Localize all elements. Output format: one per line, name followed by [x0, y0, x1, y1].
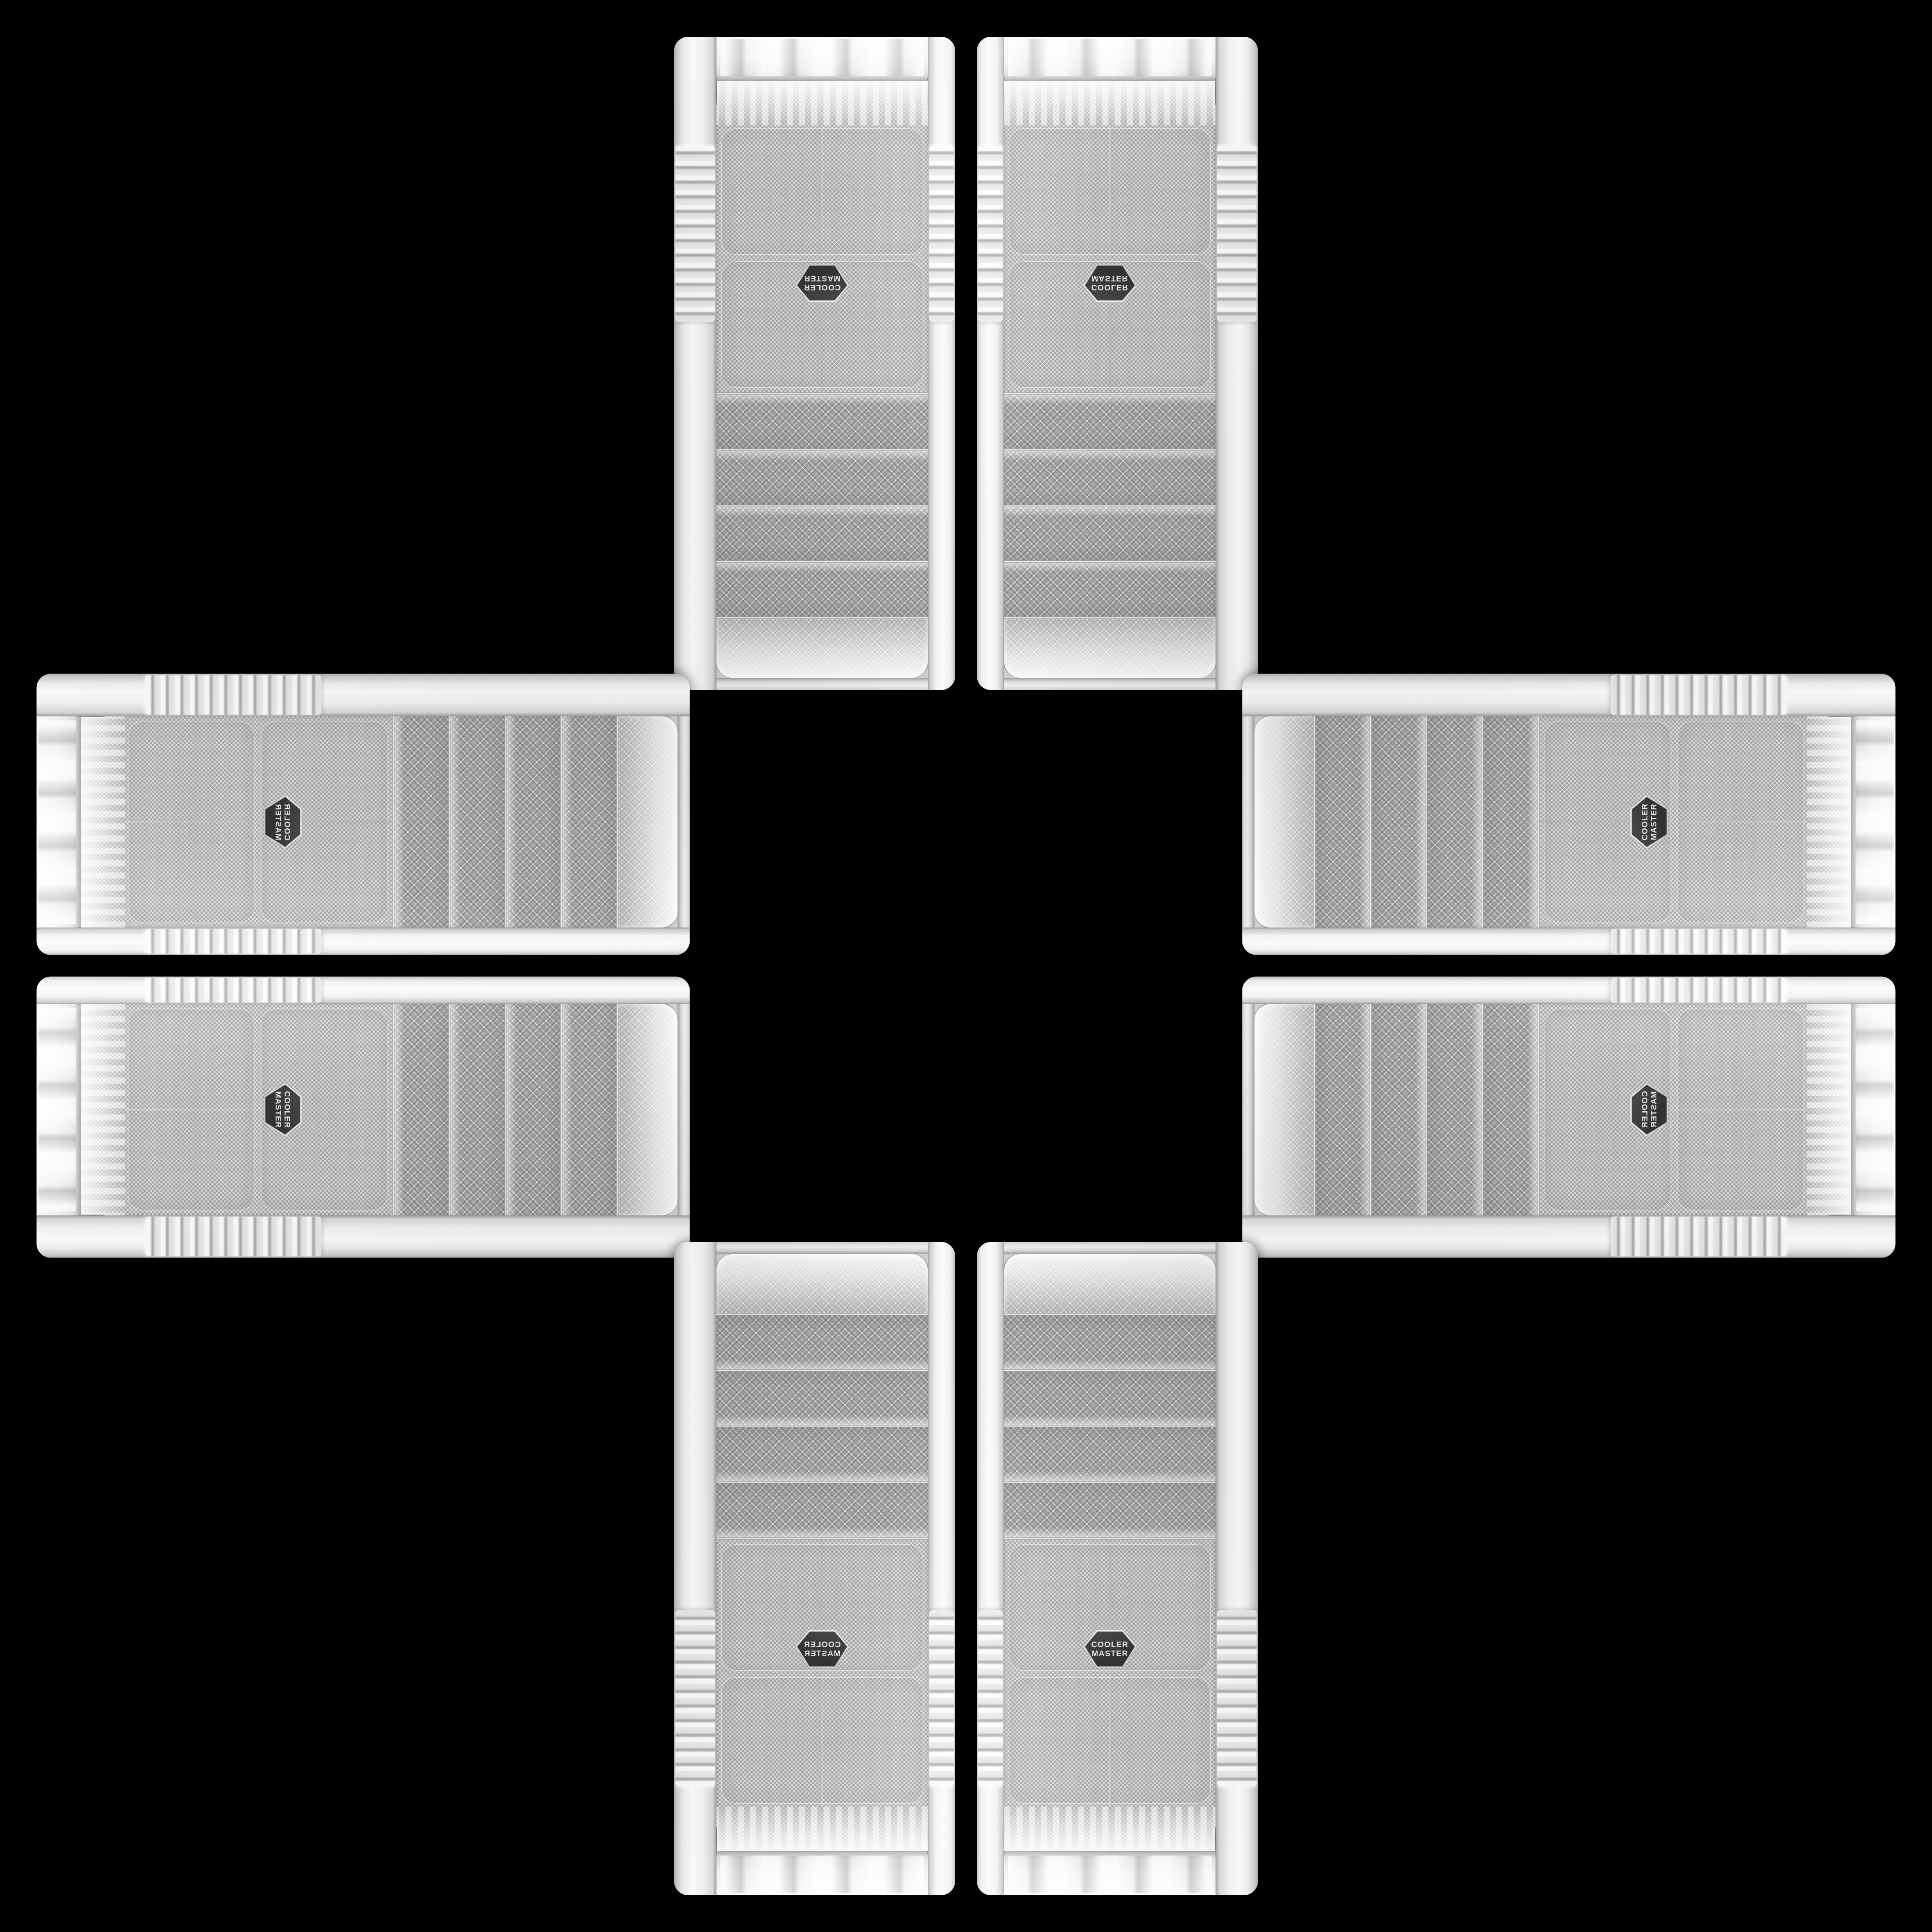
cap-ridges	[1856, 1008, 1894, 1212]
bay-strip	[395, 1004, 449, 1216]
left-rail	[37, 928, 690, 955]
badge-text-cooler: COOLER	[804, 1640, 841, 1649]
badge-text-cooler: COOLER	[804, 283, 841, 292]
grip-texture	[978, 146, 1003, 322]
right-rail	[1216, 37, 1258, 690]
badge-text-cooler: COOLER	[1641, 803, 1649, 841]
grip-texture	[929, 1610, 954, 1786]
grip-texture	[146, 1217, 322, 1257]
left-rail	[977, 37, 1004, 690]
bay-strip	[1004, 1483, 1216, 1537]
cap-ridges	[720, 1856, 924, 1893]
drive-bays	[716, 392, 928, 619]
badge-text-master: MASTER	[804, 1649, 841, 1658]
fan-grille-zone: COOLER MASTER	[716, 1540, 928, 1807]
bay-separator	[1004, 1537, 1216, 1540]
right-rail	[37, 1216, 690, 1258]
grip-texture	[146, 978, 322, 1003]
bay-strip	[1004, 563, 1216, 616]
grip-texture	[929, 146, 954, 322]
badge-text-master: MASTER	[274, 804, 283, 841]
bay-strip	[1004, 507, 1216, 561]
grip-texture	[1611, 675, 1786, 715]
bay-strip	[1004, 1316, 1216, 1369]
bay-strip	[507, 1004, 560, 1216]
bottom-cap	[1242, 1004, 1255, 1216]
fan-grille-zone: COOLER MASTER	[125, 716, 392, 928]
cap-ridges	[39, 1008, 76, 1212]
center-seam	[1109, 1540, 1110, 1807]
bay-strip	[1004, 395, 1216, 449]
center-seam	[822, 1540, 823, 1807]
left-rail	[1242, 977, 1896, 1004]
bay-strip	[1004, 451, 1216, 505]
fan-grille-zone: COOLER MASTER	[716, 125, 928, 392]
bay-strip	[716, 1483, 928, 1537]
top-mesh-wrap	[716, 1807, 928, 1851]
badge-text-master: MASTER	[1649, 804, 1658, 841]
grip-texture	[675, 1610, 715, 1786]
grip-texture	[146, 675, 322, 715]
drive-bays	[392, 716, 619, 928]
bay-strip	[716, 1428, 928, 1482]
bay-strip	[716, 395, 928, 449]
cap-ridges	[1008, 39, 1212, 76]
cap-ridges	[1856, 720, 1894, 924]
bay-strip	[1484, 1004, 1538, 1216]
case-panel-left-top: COOLER MASTER	[37, 674, 690, 955]
drive-bays	[716, 1313, 928, 1540]
top-mesh-wrap	[81, 1004, 125, 1216]
badge-text-master: MASTER	[274, 1091, 283, 1128]
grip-texture	[1611, 929, 1786, 954]
top-cap	[37, 716, 81, 928]
bottom-mesh-wrap	[1255, 716, 1314, 928]
badge-text-cooler: COOLER	[283, 1091, 292, 1128]
mesh-grille: COOLER MASTER	[81, 1004, 678, 1216]
center-seam	[125, 1109, 392, 1110]
top-cap	[1851, 716, 1896, 928]
top-cap	[716, 1851, 928, 1895]
bay-strip	[450, 1004, 504, 1216]
grip-texture	[1217, 1610, 1257, 1786]
bottom-cap	[678, 1004, 690, 1216]
bay-strip	[716, 451, 928, 505]
bay-strip	[1372, 716, 1425, 928]
top-mesh-wrap	[1004, 1807, 1216, 1851]
grip-texture	[146, 929, 322, 954]
bottom-mesh-wrap	[716, 619, 928, 678]
drive-bays	[1004, 392, 1216, 619]
badge-text-cooler: COOLER	[1091, 283, 1129, 292]
bottom-cap	[1004, 678, 1216, 690]
bottom-mesh-wrap	[1004, 619, 1216, 678]
top-mesh-wrap	[1807, 716, 1851, 928]
bay-strip	[450, 716, 504, 928]
bay-strip	[1428, 716, 1482, 928]
mesh-grille: COOLER MASTER	[1255, 1004, 1851, 1216]
top-cap	[1004, 37, 1216, 81]
left-rail	[928, 37, 955, 690]
bay-strip	[716, 1316, 928, 1369]
top-mesh-wrap	[1807, 1004, 1851, 1216]
right-rail	[674, 37, 716, 690]
right-rail	[674, 1242, 716, 1895]
top-mesh-wrap	[716, 81, 928, 125]
left-rail	[1242, 928, 1896, 955]
bay-strip	[1484, 716, 1538, 928]
drive-bays	[1004, 1313, 1216, 1540]
case-panel-bottom-right: COOLER MASTER	[977, 1242, 1258, 1895]
right-rail	[37, 674, 690, 716]
fan-grille-zone: COOLER MASTER	[1540, 716, 1807, 928]
mesh-grille: COOLER MASTER	[1004, 1254, 1216, 1851]
bay-separator	[1538, 1004, 1540, 1216]
bottom-cap	[1242, 716, 1255, 928]
right-rail	[1216, 1242, 1258, 1895]
case-panel-bottom-left: COOLER MASTER	[674, 1242, 955, 1895]
badge-text-master: MASTER	[804, 274, 841, 283]
top-cap	[1851, 1004, 1896, 1216]
bay-strip	[1316, 716, 1370, 928]
right-rail	[1242, 1216, 1896, 1258]
fan-grille-zone: COOLER MASTER	[1540, 1004, 1807, 1216]
drive-bays	[392, 1004, 619, 1216]
bay-separator	[716, 1537, 928, 1540]
center-seam	[822, 125, 823, 392]
bay-strip	[507, 716, 560, 928]
top-cap	[37, 1004, 81, 1216]
bay-strip	[1372, 1004, 1425, 1216]
bay-strip	[1316, 1004, 1370, 1216]
cap-ridges	[39, 720, 76, 924]
top-cap	[716, 37, 928, 81]
mesh-grille: COOLER MASTER	[716, 81, 928, 678]
drive-bays	[1314, 716, 1540, 928]
bottom-cap	[678, 716, 690, 928]
grip-texture	[1217, 146, 1257, 322]
drive-bays	[1314, 1004, 1540, 1216]
left-rail	[37, 977, 690, 1004]
bay-strip	[716, 563, 928, 616]
cap-ridges	[1008, 1856, 1212, 1893]
bay-strip	[1428, 1004, 1482, 1216]
case-panel-top-right: COOLER MASTER	[977, 37, 1258, 690]
bottom-mesh-wrap	[619, 1004, 678, 1216]
center-seam	[1109, 125, 1110, 392]
bay-strip	[563, 1004, 616, 1216]
badge-text-cooler: COOLER	[283, 803, 292, 841]
mesh-grille: COOLER MASTER	[1255, 716, 1851, 928]
grip-texture	[675, 146, 715, 322]
badge-text-cooler: COOLER	[1091, 1640, 1129, 1649]
grip-texture	[1611, 978, 1786, 1003]
badge-text-master: MASTER	[1649, 1091, 1658, 1128]
bay-strip	[1004, 1372, 1216, 1425]
case-panel-left-bottom: COOLER MASTER	[37, 977, 690, 1258]
fan-grille-zone: COOLER MASTER	[1004, 125, 1216, 392]
case-panel-top-left: COOLER MASTER	[674, 37, 955, 690]
bottom-cap	[716, 1242, 928, 1254]
fan-grille-zone: COOLER MASTER	[1004, 1540, 1216, 1807]
right-rail	[1242, 674, 1896, 716]
bay-strip	[395, 716, 449, 928]
bay-strip	[716, 507, 928, 561]
case-panel-right-top: COOLER MASTER	[1242, 674, 1896, 955]
mesh-grille: COOLER MASTER	[1004, 81, 1216, 678]
panel-collage: COOLER MASTER	[0, 0, 1932, 1932]
case-panel-right-bottom: COOLER MASTER	[1242, 977, 1896, 1258]
bottom-mesh-wrap	[619, 716, 678, 928]
badge-text-master: MASTER	[1091, 1649, 1128, 1658]
center-seam	[125, 822, 392, 823]
cap-ridges	[720, 39, 924, 76]
bay-strip	[563, 716, 616, 928]
bottom-cap	[1004, 1242, 1216, 1254]
bay-separator	[1538, 716, 1540, 928]
bottom-cap	[716, 678, 928, 690]
top-cap	[1004, 1851, 1216, 1895]
left-rail	[928, 1242, 955, 1895]
center-seam	[1540, 822, 1807, 823]
top-mesh-wrap	[81, 716, 125, 928]
bottom-mesh-wrap	[1255, 1004, 1314, 1216]
badge-text-cooler: COOLER	[1641, 1091, 1649, 1128]
bottom-mesh-wrap	[1004, 1254, 1216, 1313]
grip-texture	[1611, 1217, 1786, 1257]
bay-strip	[716, 1372, 928, 1425]
bottom-mesh-wrap	[716, 1254, 928, 1313]
badge-text-master: MASTER	[1091, 274, 1128, 283]
top-mesh-wrap	[1004, 81, 1216, 125]
mesh-grille: COOLER MASTER	[81, 716, 678, 928]
bay-strip	[1004, 1428, 1216, 1482]
left-rail	[977, 1242, 1004, 1895]
grip-texture	[978, 1610, 1003, 1786]
center-seam	[1540, 1109, 1807, 1110]
mesh-grille: COOLER MASTER	[716, 1254, 928, 1851]
fan-grille-zone: COOLER MASTER	[125, 1004, 392, 1216]
